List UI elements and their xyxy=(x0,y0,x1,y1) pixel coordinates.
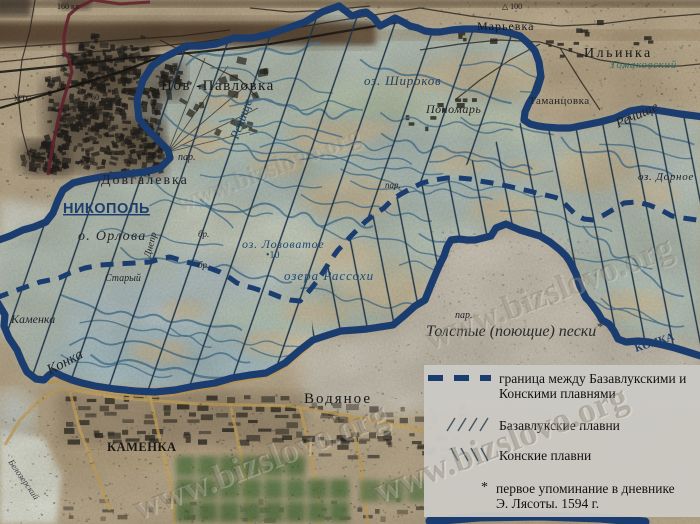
svg-text:Пономарь: Пономарь xyxy=(425,102,481,116)
svg-text:о. Орлова: о. Орлова xyxy=(78,229,147,244)
svg-text:оз. Лозоватое: оз. Лозоватое xyxy=(242,237,325,251)
svg-text:Таманцовка: Таманцовка xyxy=(529,95,590,107)
svg-text:*: * xyxy=(481,480,488,495)
svg-text:МТС: МТС xyxy=(14,94,31,103)
svg-text:Довгалевка: Довгалевка xyxy=(101,173,189,188)
svg-text:бр.: бр. xyxy=(198,229,209,239)
svg-text:•10: •10 xyxy=(266,250,280,261)
svg-text:△ 100: △ 100 xyxy=(502,2,522,11)
svg-text:оз. Дорное: оз. Дорное xyxy=(638,171,694,183)
svg-text:озера Рассохи: озера Рассохи xyxy=(284,268,374,283)
svg-text:Старый: Старый xyxy=(105,273,141,284)
svg-text:НИКОПОЛЬ: НИКОПОЛЬ xyxy=(63,201,150,217)
svg-text:160 кл: 160 кл xyxy=(57,2,79,11)
svg-text:Томаковский: Томаковский xyxy=(610,59,677,71)
svg-text:Нов -Павловка: Нов -Павловка xyxy=(161,78,275,94)
svg-text:оз. Широков: оз. Широков xyxy=(364,73,442,88)
svg-text:пар.: пар. xyxy=(178,152,196,163)
svg-text:Марьевка: Марьевка xyxy=(477,19,534,33)
svg-text:пар.: пар. xyxy=(385,180,401,190)
svg-text:бр.: бр. xyxy=(198,260,209,270)
svg-text:Каменка: Каменка xyxy=(10,312,55,326)
svg-text:граница между Базавлукскими и: граница между Базавлукскими и xyxy=(499,371,686,386)
svg-text:☆ 60: ☆ 60 xyxy=(82,93,99,102)
svg-text:Э. Лясоты. 1594 г.: Э. Лясоты. 1594 г. xyxy=(496,496,599,511)
svg-text:первое упоминание в дневнике: первое упоминание в дневнике xyxy=(496,481,675,496)
svg-text:КАМЕНКА: КАМЕНКА xyxy=(107,440,177,454)
